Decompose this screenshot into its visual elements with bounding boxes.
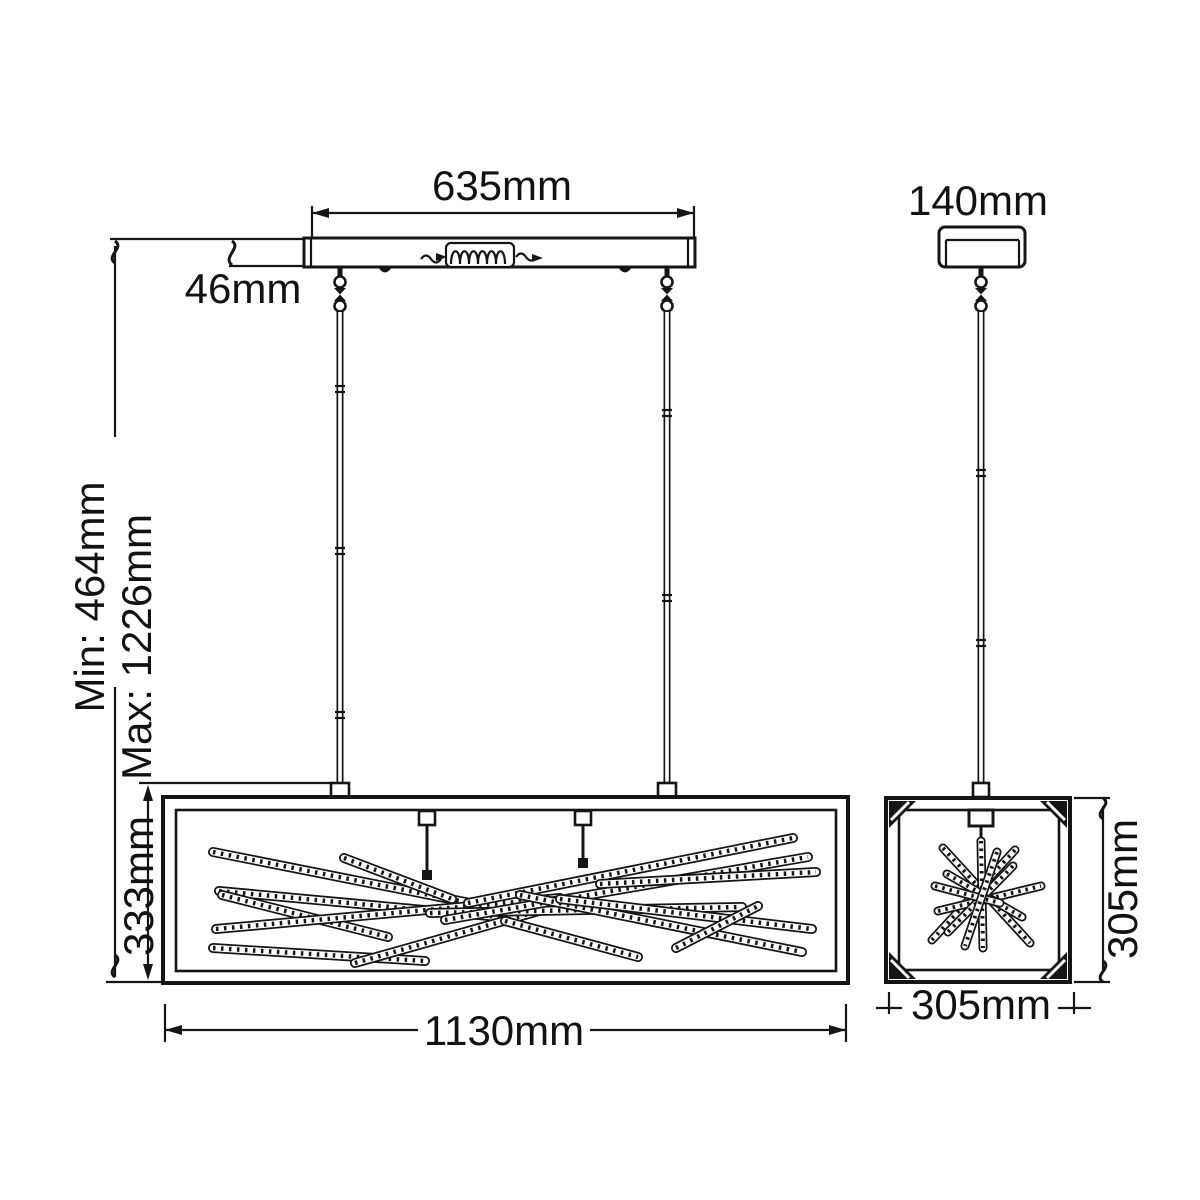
suspension-rod-left: [331, 267, 349, 797]
dim-label-canopy-width-front: 635mm: [432, 165, 572, 207]
dim-label-canopy-width-side: 140mm: [908, 180, 1048, 222]
front-canopy: [304, 238, 695, 273]
dim-label-max-drop: Max: 1226mm: [116, 514, 158, 780]
dim-canopy-height: [110, 239, 304, 266]
dim-label-min-drop: Min: 464mm: [69, 481, 111, 712]
dim-canopy-width-front: [312, 206, 694, 238]
dim-label-body-height-side: 305mm: [1102, 819, 1144, 959]
dim-label-body-width-front: 1130mm: [424, 1010, 584, 1052]
diagram-canvas: 635mm 46mm Min: 464mm Max: 1226mm 333mm …: [0, 0, 1200, 1200]
side-canopy: [939, 227, 1025, 267]
suspension-rod-right: [658, 267, 676, 797]
dim-label-canopy-height: 46mm: [185, 268, 302, 310]
dim-label-body-height-front: 333mm: [118, 816, 160, 956]
suspension-rod-side: [973, 267, 989, 797]
dim-label-body-width-side: 305mm: [911, 984, 1051, 1026]
